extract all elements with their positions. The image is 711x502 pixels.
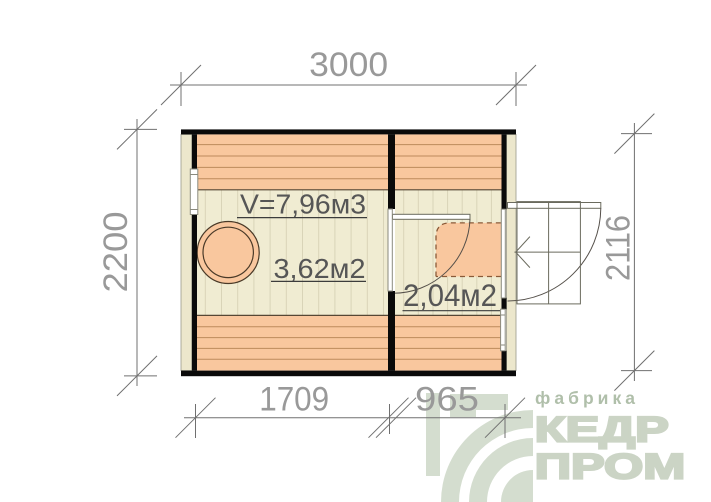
svg-text:2200: 2200 xyxy=(97,212,135,293)
svg-text:фабрика: фабрика xyxy=(535,388,635,408)
svg-text:2,04м2: 2,04м2 xyxy=(403,277,497,313)
svg-text:ПРОМ: ПРОМ xyxy=(535,448,686,487)
svg-text:3000: 3000 xyxy=(309,46,388,84)
svg-text:3,62м2: 3,62м2 xyxy=(274,253,366,284)
svg-text:2116: 2116 xyxy=(599,215,637,281)
svg-text:965: 965 xyxy=(415,381,479,419)
svg-text:КЕДР: КЕДР xyxy=(535,411,669,450)
svg-text:V=7,96м3: V=7,96м3 xyxy=(240,189,366,220)
svg-text:1709: 1709 xyxy=(259,381,329,419)
